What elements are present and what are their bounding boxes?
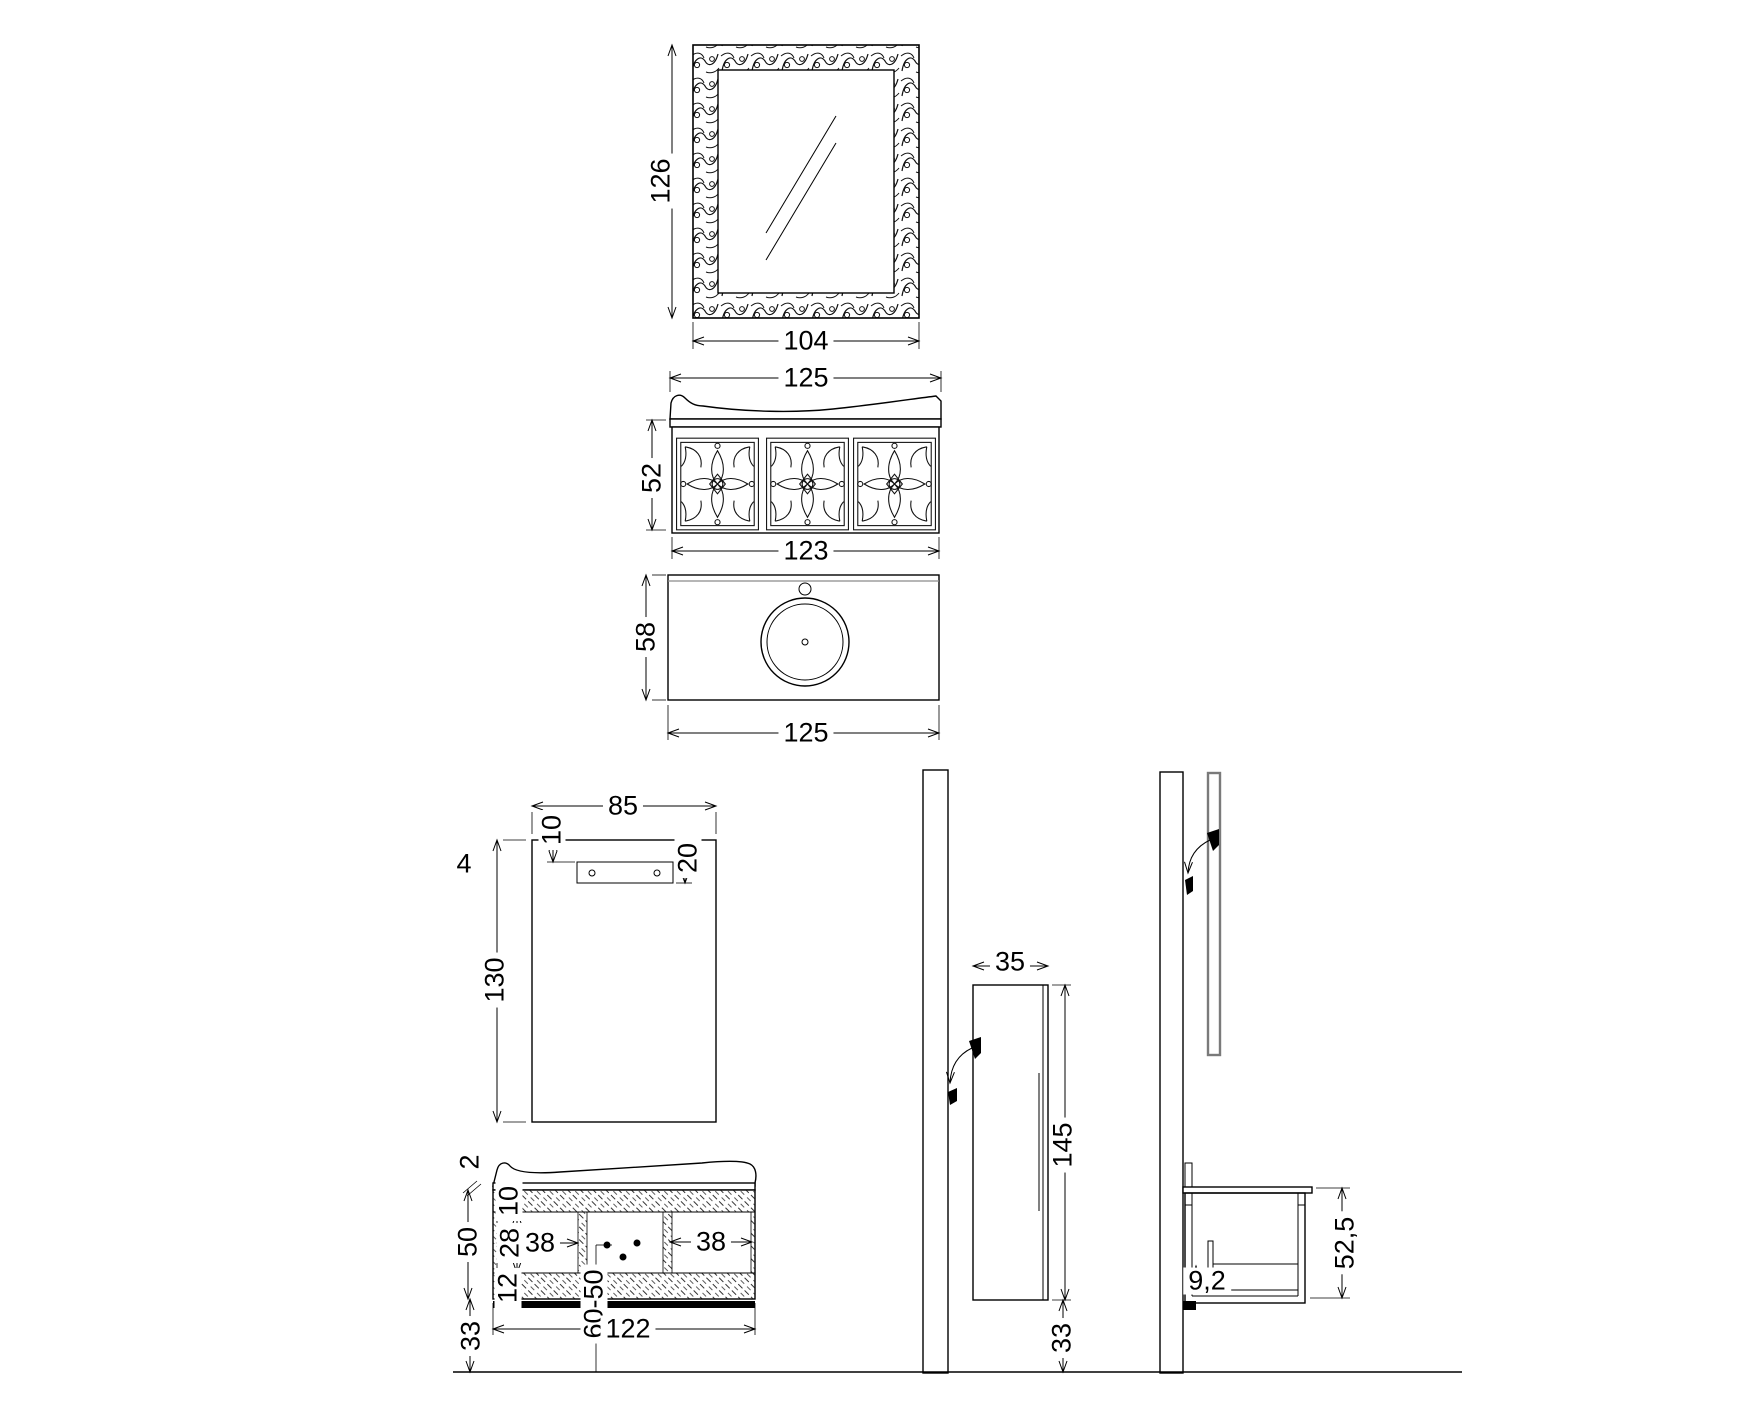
dim-bracket-top-offset: 10 (539, 810, 566, 850)
mirror-front-view (672, 45, 919, 349)
dim-counter-thickness: 2 (457, 1149, 484, 1174)
dim-bottom-panel: 12 (495, 1268, 522, 1308)
dim-top-panel: 10 (496, 1181, 523, 1221)
dim-cabinet-depth: 35 (990, 949, 1030, 976)
bottom-panel-hatched (493, 1273, 755, 1299)
tall-cabinet-side (973, 985, 1048, 1300)
dim-mirror-width: 104 (778, 328, 833, 355)
carved-countertop-profile (493, 1161, 756, 1186)
mounting-rail (1185, 1163, 1192, 1205)
lamp-swivel-arrow (1188, 840, 1210, 873)
dim-mirror-back-height: 130 (482, 952, 509, 1007)
dim-vanity-body-width: 123 (778, 538, 833, 565)
plinth-strip (493, 1301, 755, 1308)
side-elevation-view (923, 770, 1071, 1373)
dim-elevation-floor-gap: 33 (1049, 1318, 1076, 1358)
cabinet-foot (1183, 1301, 1196, 1310)
side-bracket (1298, 1193, 1305, 1205)
wall-panel (1160, 772, 1183, 1373)
dim-vanity-height: 52 (639, 458, 666, 498)
plumbing-hole (634, 1240, 641, 1247)
dim-mirror-height: 126 (648, 153, 675, 208)
dim-worktop-height: 52,5 (1332, 1212, 1359, 1275)
dim-mirror-back-width: 85 (603, 793, 643, 820)
washbasin-top-view (646, 575, 939, 740)
lamp-swivel-arrow (950, 1048, 972, 1083)
technical-drawing-canvas: 126 104 125 52 123 58 125 85 10 20 4 130… (0, 0, 1758, 1406)
dim-right-door-width: 38 (691, 1229, 731, 1256)
wall-panel (923, 770, 948, 1373)
dim-drawer-clearance: 9,2 (1183, 1268, 1231, 1295)
drawing-linework (0, 0, 1758, 1406)
carved-countertop-profile (670, 395, 941, 419)
plumbing-hole (620, 1254, 627, 1261)
dim-section-floor-gap: 33 (458, 1316, 485, 1356)
top-panel-hatched (493, 1190, 755, 1212)
wall-lamp-icon (1185, 876, 1193, 895)
dim-mirror-depth: 4 (451, 851, 476, 878)
wall-lamp-icon (948, 1088, 957, 1105)
dim-cabinet-height: 145 (1050, 1117, 1077, 1172)
dim-basin-width: 125 (778, 720, 833, 747)
dim-section-height: 50 (455, 1222, 482, 1262)
dim-basin-depth: 58 (633, 617, 660, 657)
mirror-side-strip (1208, 773, 1220, 1055)
vanity-front-view (646, 371, 941, 559)
dim-bracket-bottom: 20 (675, 838, 702, 878)
dim-vanity-top-width: 125 (778, 365, 833, 392)
dim-section-width: 122 (600, 1316, 655, 1343)
dim-left-door-width: 38 (520, 1230, 560, 1257)
worktop-slab (1183, 1187, 1312, 1193)
